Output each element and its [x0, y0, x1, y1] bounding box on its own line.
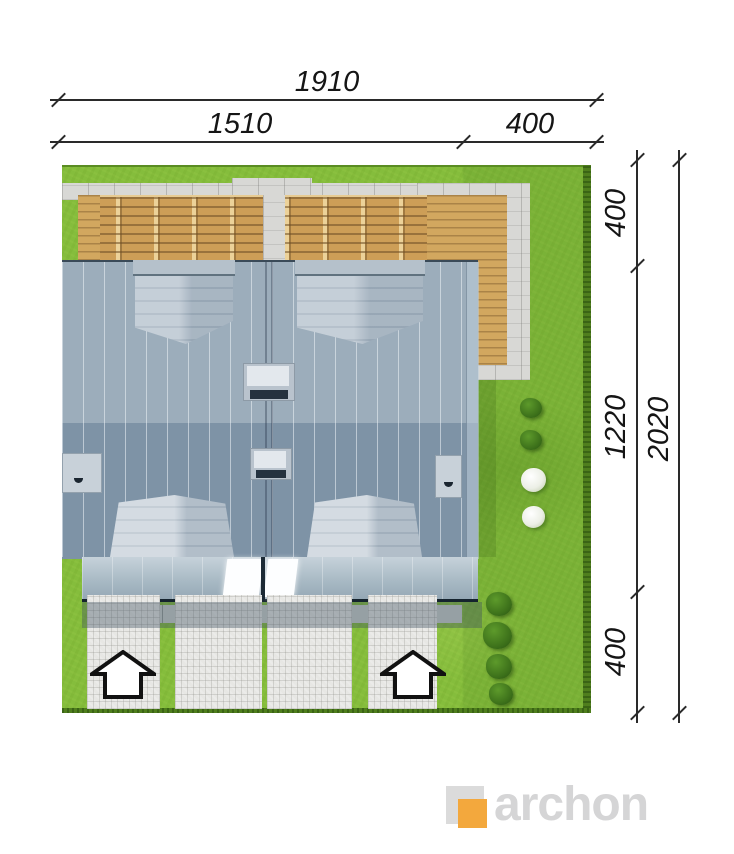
dim-line-total-depth — [678, 150, 680, 723]
dormer-cap-right — [295, 260, 425, 276]
party-wall-line — [271, 262, 273, 559]
bush-white — [521, 468, 546, 492]
side-wall-box-right — [435, 455, 462, 498]
bush — [520, 398, 542, 418]
entrance-arrow-icon — [380, 650, 446, 699]
bush — [486, 592, 512, 616]
skylight-panel — [264, 559, 299, 597]
dim-label-width-side: 400 — [465, 109, 595, 139]
dim-line-width-segments — [50, 141, 604, 143]
dim-label-total-width: 1910 — [262, 67, 392, 97]
bush — [520, 430, 542, 450]
entrance-arrow-icon — [90, 650, 156, 699]
site-plan-image — [62, 165, 591, 713]
side-wall-box-left — [62, 453, 102, 493]
logo-orange-square — [458, 799, 487, 828]
roof-right-eave — [466, 262, 479, 559]
party-wall-line — [265, 262, 267, 559]
dim-line-total-width — [50, 99, 604, 101]
building-shadow — [82, 602, 482, 628]
dim-line-depth-segments — [636, 150, 638, 723]
bush — [483, 622, 512, 649]
house-shadow — [478, 380, 496, 557]
front-dormer-left — [110, 495, 234, 557]
chimney-vent — [250, 448, 292, 480]
dim-label-width-main: 1510 — [175, 109, 305, 139]
bush — [489, 683, 513, 705]
dim-label-depth-middle: 1220 — [601, 362, 631, 492]
chimney-vent — [243, 363, 295, 401]
hedge-border-right — [583, 165, 591, 713]
dim-label-depth-bottom: 400 — [601, 587, 631, 717]
dim-label-depth-top: 400 — [601, 148, 631, 278]
logo-wordmark: archon — [494, 780, 734, 830]
dormer-cap-left — [133, 260, 235, 276]
skylight-panel — [223, 559, 264, 597]
site-plan-page: 1910 1510 400 400 1220 400 2020 — [0, 0, 734, 854]
bush — [486, 654, 512, 679]
dim-label-total-depth: 2020 — [644, 364, 674, 494]
front-dormer-right — [307, 495, 422, 557]
bush-white — [522, 506, 545, 528]
